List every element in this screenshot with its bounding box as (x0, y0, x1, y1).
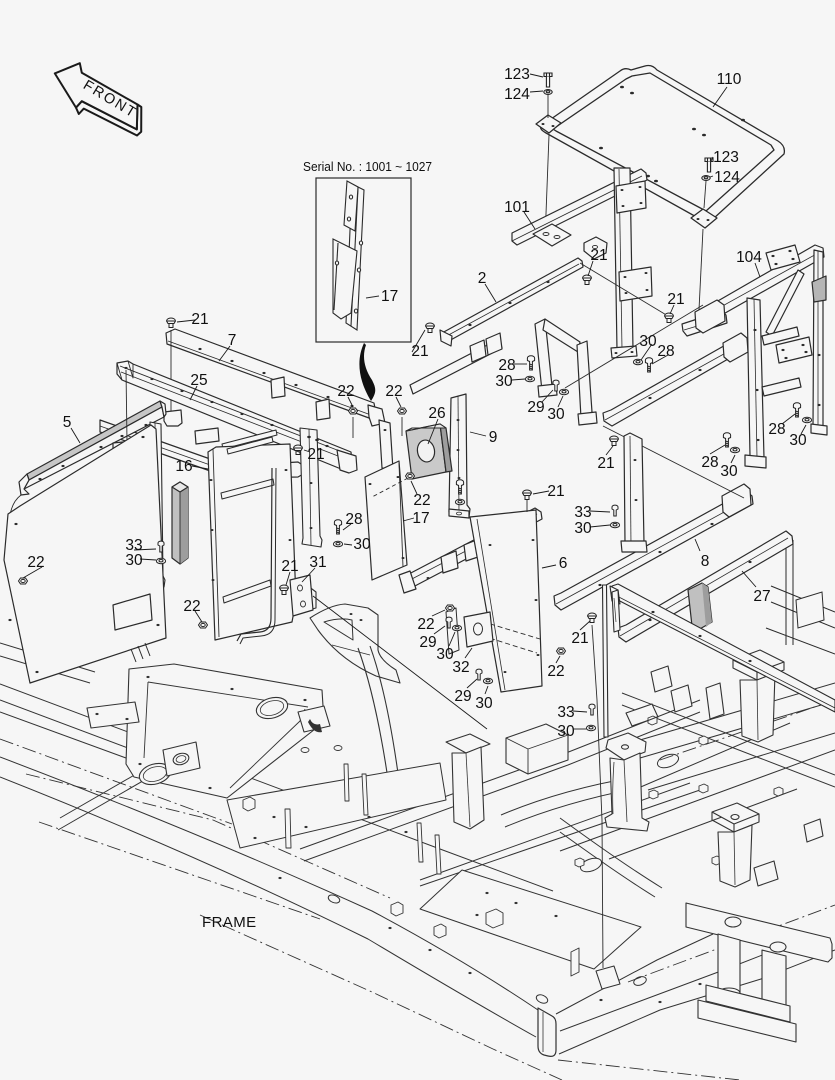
svg-text:6: 6 (559, 555, 568, 572)
svg-text:FRAME: FRAME (202, 914, 257, 931)
svg-text:Serial No. : 1001 ~ 1027: Serial No. : 1001 ~ 1027 (303, 159, 432, 174)
svg-text:101: 101 (504, 199, 530, 216)
svg-text:29: 29 (527, 399, 544, 416)
svg-text:124: 124 (504, 86, 530, 103)
svg-text:29: 29 (419, 634, 436, 651)
svg-text:25: 25 (190, 372, 207, 389)
svg-text:26: 26 (428, 405, 445, 422)
svg-text:21: 21 (547, 483, 564, 500)
svg-text:30: 30 (639, 333, 657, 350)
svg-text:5: 5 (63, 414, 72, 431)
svg-text:22: 22 (385, 383, 402, 400)
svg-text:7: 7 (228, 332, 237, 349)
svg-text:21: 21 (571, 630, 588, 647)
svg-text:123: 123 (504, 66, 530, 83)
svg-text:30: 30 (125, 552, 143, 569)
svg-text:8: 8 (701, 553, 710, 570)
svg-text:123: 123 (713, 149, 739, 166)
svg-text:29: 29 (454, 688, 471, 705)
svg-text:33: 33 (557, 704, 574, 721)
svg-text:124: 124 (714, 169, 740, 186)
svg-text:30: 30 (475, 695, 493, 712)
svg-text:30: 30 (353, 536, 371, 553)
svg-text:22: 22 (27, 554, 44, 571)
svg-text:16: 16 (175, 458, 192, 475)
svg-text:17: 17 (381, 288, 398, 305)
svg-text:104: 104 (736, 249, 762, 266)
svg-text:21: 21 (281, 558, 298, 575)
svg-text:22: 22 (547, 663, 564, 680)
svg-text:21: 21 (191, 311, 208, 328)
svg-text:2: 2 (478, 270, 487, 287)
svg-text:9: 9 (489, 429, 498, 446)
svg-text:28: 28 (657, 343, 674, 360)
svg-text:30: 30 (547, 406, 565, 423)
svg-text:21: 21 (590, 247, 607, 264)
svg-text:22: 22 (183, 598, 200, 615)
svg-text:30: 30 (789, 432, 807, 449)
svg-text:33: 33 (574, 504, 591, 521)
svg-text:32: 32 (452, 659, 469, 676)
svg-text:28: 28 (701, 454, 718, 471)
svg-text:31: 31 (309, 554, 326, 571)
svg-text:30: 30 (495, 373, 513, 390)
svg-text:28: 28 (345, 511, 362, 528)
svg-text:22: 22 (413, 492, 430, 509)
svg-text:30: 30 (574, 520, 592, 537)
svg-text:30: 30 (557, 723, 575, 740)
svg-text:21: 21 (411, 343, 428, 360)
svg-text:17: 17 (412, 510, 429, 527)
svg-text:22: 22 (417, 616, 434, 633)
svg-text:27: 27 (753, 588, 770, 605)
svg-text:28: 28 (768, 421, 785, 438)
svg-text:30: 30 (436, 646, 454, 663)
svg-text:110: 110 (717, 71, 742, 88)
svg-text:30: 30 (720, 463, 738, 480)
svg-text:21: 21 (667, 291, 684, 308)
svg-text:21: 21 (597, 455, 614, 472)
svg-text:22: 22 (337, 383, 354, 400)
svg-text:28: 28 (498, 357, 515, 374)
svg-text:21: 21 (307, 446, 324, 463)
